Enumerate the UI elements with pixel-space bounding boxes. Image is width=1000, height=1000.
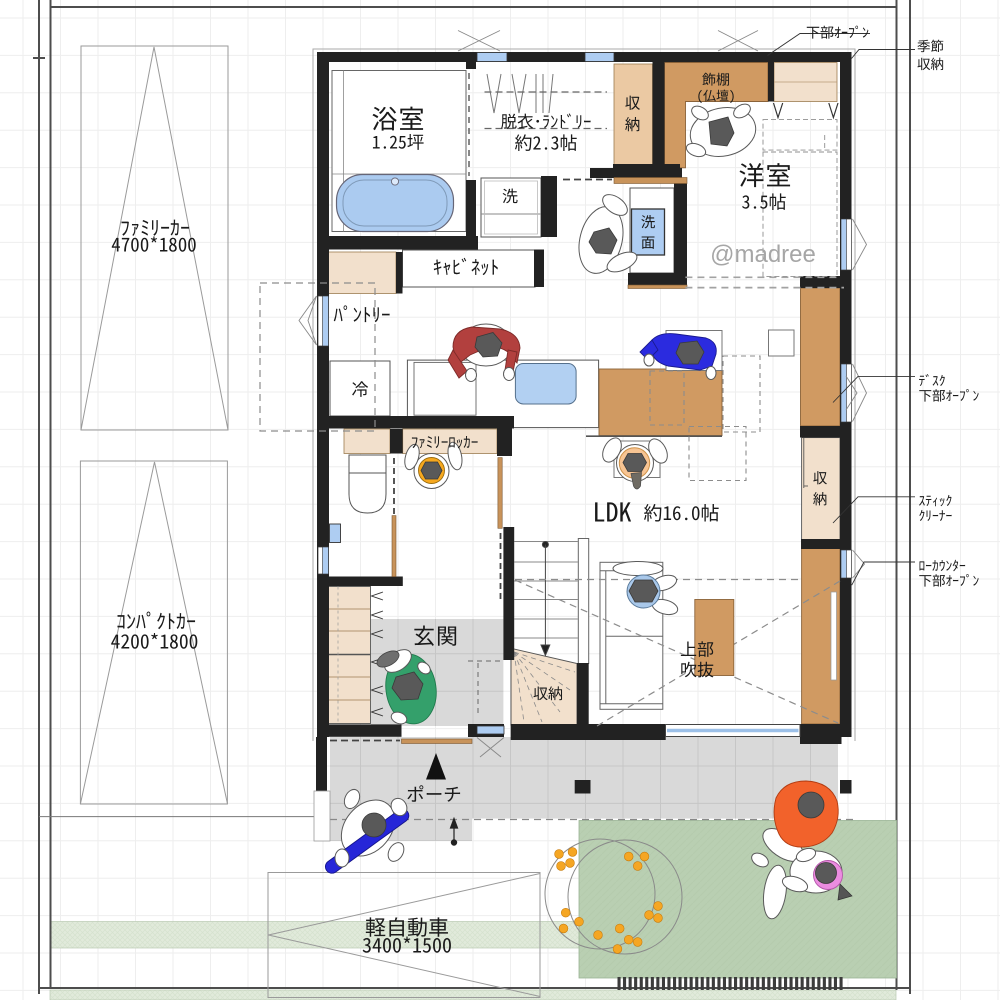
svg-text:@madree: @madree bbox=[710, 241, 816, 268]
